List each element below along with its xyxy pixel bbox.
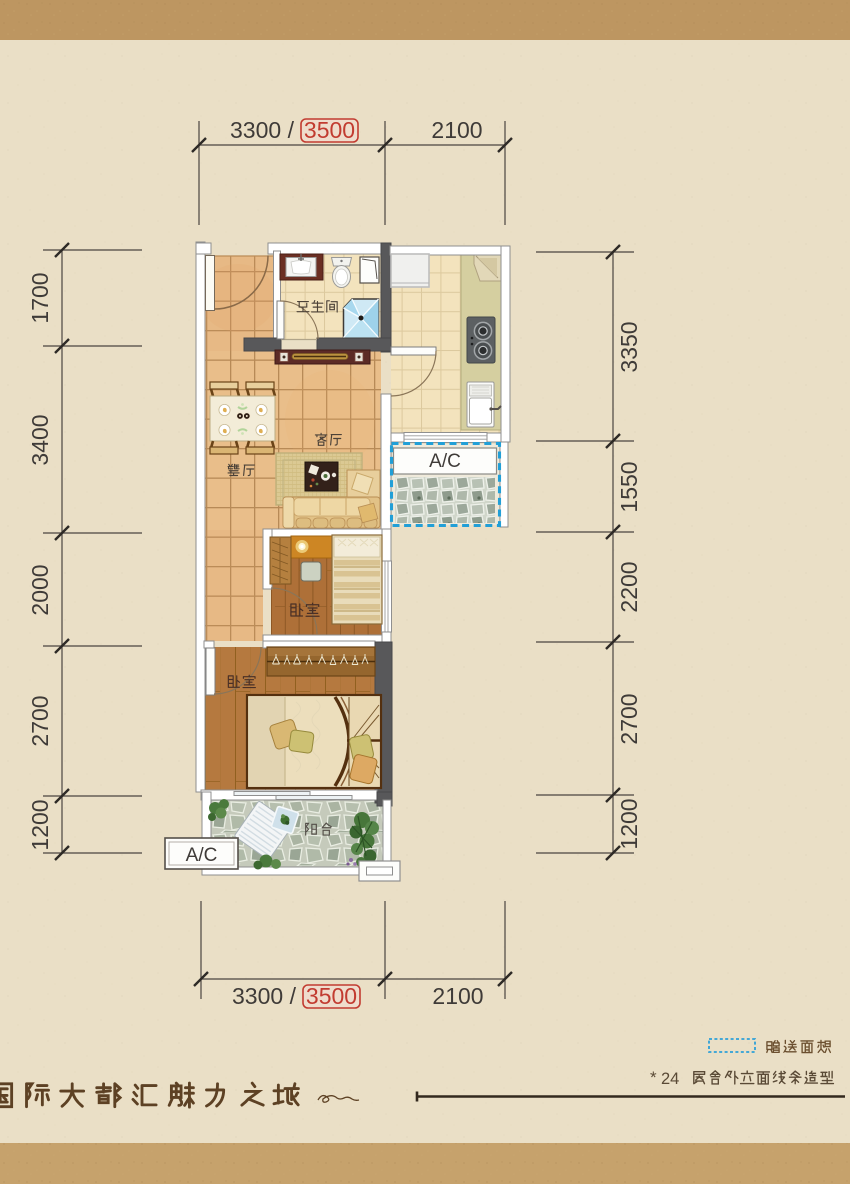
svg-text:A/C: A/C: [186, 845, 218, 866]
svg-text:2100: 2100: [432, 983, 483, 1009]
svg-text:1700: 1700: [27, 272, 53, 323]
svg-text:3500: 3500: [304, 117, 355, 143]
svg-text:24: 24: [661, 1070, 679, 1088]
svg-text:3350: 3350: [616, 321, 642, 372]
svg-text:1200: 1200: [27, 799, 53, 850]
svg-text:A/C: A/C: [429, 451, 461, 472]
svg-text:2700: 2700: [616, 693, 642, 744]
svg-text:3400: 3400: [27, 414, 53, 465]
svg-text:2700: 2700: [27, 695, 53, 746]
svg-text:2200: 2200: [616, 561, 642, 612]
svg-text:3500: 3500: [306, 983, 357, 1009]
svg-text:*: *: [650, 1068, 657, 1087]
svg-text:1550: 1550: [616, 461, 642, 512]
svg-text:2100: 2100: [431, 117, 482, 143]
svg-text:3300 /: 3300 /: [230, 117, 295, 143]
svg-text:1200: 1200: [616, 798, 642, 849]
svg-text:3300 /: 3300 /: [232, 983, 297, 1009]
svg-text:2000: 2000: [27, 564, 53, 615]
